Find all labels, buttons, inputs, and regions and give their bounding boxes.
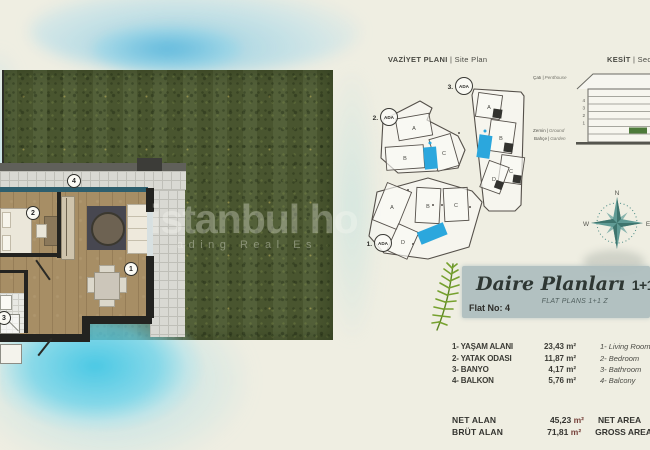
room-row-bathroom: 3- BANYO 4,17 m² 3- Bathroom [452,364,650,375]
room-name-en: 2- Bedroom [600,354,639,363]
room-area-value: 11,87 m² [540,354,576,363]
ada1-number: 1. [367,241,373,248]
room-area-value: 4,17 m² [540,365,576,374]
plot-boundary-line [2,70,4,166]
banner-subtitle: FLAT PLANS 1+1 Z [542,298,608,305]
building-3A-label: A [487,105,491,111]
wall [24,273,28,333]
building-2A-label: A [412,126,416,132]
compass-east-label: E [646,221,650,228]
marker-living-room: 1 [124,262,138,276]
net-area-value: 45,23 m² [542,415,584,425]
wall [86,316,152,324]
pool-dot [484,130,487,133]
fern-leaf-icon [425,258,470,338]
area-totals: NET ALAN 45,23 m² NET AREA BRÜT ALAN 71,… [452,414,650,438]
terrace-corner-block [137,158,162,172]
compass-west-label: W [583,221,590,228]
room-list: 1- YAŞAM ALANI 23,43 m² 1- Living Room 2… [452,341,650,387]
watercolor-top [30,0,360,74]
room-area-value: 23,43 m² [540,342,576,351]
pillow [2,235,11,251]
section-roof-label: Çatı|Penthouse [533,75,567,80]
wardrobe [61,196,75,260]
site-plan-and-section-drawing: A B C A B C D A B C D [350,40,650,265]
section-drawing: 4 3 2 1 Çatı|Penthouse Zemin|Ground Bahç… [533,74,650,145]
building-2B-label: B [403,156,407,162]
section-ground-label: Zemin|Ground [533,128,565,133]
sofa-cushion-line [128,228,148,229]
terrace-tiles-right [150,190,185,337]
building-2C-label: C [442,151,446,157]
section-ground-line [576,142,650,145]
room-name-tr: 3- BANYO [452,365,540,374]
svg-text:2: 2 [582,113,585,118]
brochure-page: 1 2 3 4 istanbul ho ading Real Es VAZİYE… [0,0,650,450]
desk-chair [36,224,47,238]
banner-title-suffix: 1+1 Z [632,277,650,293]
gross-area-value: 71,81 m² [540,427,581,437]
marker-bedroom-label: 2 [31,210,35,217]
room-name-en: 4- Balcony [600,376,635,385]
sofa-cushion-line [128,240,148,241]
marker-living-label: 1 [129,266,133,273]
pool-dot [429,142,432,145]
wall [57,192,61,258]
net-area-label-tr: NET ALAN [452,415,542,425]
marker-balcony-label: 4 [72,178,76,185]
gross-area-label-en: GROSS AREA [595,427,650,437]
section-highlight-ground-flat [629,128,647,134]
section-garden-label: Bahçe|Garden [534,136,566,141]
wall [0,334,90,342]
gross-area-row: BRÜT ALAN 71,81 m² GROSS AREA [452,426,650,438]
compass-north-label: N [615,190,620,197]
building-3D-label: D [492,177,496,183]
net-area-number: 45,23 [550,415,571,425]
section-floor-numbers: 4 3 2 1 [582,98,585,126]
flat-number-label: Flat No: 4 [469,303,510,313]
marker-balcony: 4 [67,174,81,188]
building-3B-label: B [499,136,503,142]
svg-text:4: 4 [582,98,585,103]
section-roof [577,74,650,89]
window [147,212,153,256]
flat-plan-banner: Daire Planları 1+1 Z FLAT PLANS 1+1 Z Fl… [462,266,650,318]
pool-block2 [423,147,438,170]
svg-text:1: 1 [582,121,585,126]
wall [0,253,61,257]
compass-rose-icon: N W E [583,190,650,249]
room-row-bedroom: 2- YATAK ODASI 11,87 m² 2- Bedroom [452,352,650,363]
gross-area-label-tr: BRÜT ALAN [452,427,540,437]
bathroom-sink [0,295,12,310]
ada2-number: 2. [373,115,379,122]
marker-bedroom: 2 [26,206,40,220]
net-area-unit: m² [574,415,584,425]
room-name-en: 1- Living Room [600,342,650,351]
building-1B-label: B [426,204,430,210]
building-3C-label: C [509,169,513,175]
entry-cabinet [0,344,22,364]
net-area-label-en: NET AREA [598,415,641,425]
banner-title-script: Daire Planları [476,273,625,295]
wall [146,188,154,212]
room-row-balcony: 4- BALKON 5,76 m² 4- Balcony [452,375,650,386]
pillow [2,212,11,228]
round-coffee-table [91,212,125,246]
wall [0,270,28,273]
dining-table [94,272,120,300]
building-1A-label: A [390,205,394,211]
wardrobe-door-line [66,198,67,256]
room-name-tr: 1- YAŞAM ALANI [452,342,540,351]
ada3-name: ADA [459,84,470,89]
sofa-cushion-line [128,216,148,217]
gross-area-unit: m² [571,427,581,437]
room-name-tr: 2- YATAK ODASI [452,354,540,363]
room-row-living: 1- YAŞAM ALANI 23,43 m² 1- Living Room [452,341,650,352]
room-name-en: 3- Bathroom [600,365,641,374]
svg-text:3: 3 [582,106,585,111]
wall [146,256,154,318]
room-name-tr: 4- BALKON [452,376,540,385]
banner-title: Daire Planları 1+1 Z [476,273,650,295]
net-area-row: NET ALAN 45,23 m² NET AREA [452,414,650,426]
marker-bathroom-label: 3 [2,315,6,322]
ada2-name: ADA [384,115,395,120]
watercolor-sky-patch [92,26,242,72]
ada3-number: 3. [448,84,454,91]
building-1D-label: D [401,240,405,246]
gross-area-number: 71,81 [547,427,568,437]
ada1-name: ADA [378,241,389,246]
room-area-value: 5,76 m² [540,376,576,385]
building-1C-label: C [454,203,458,209]
